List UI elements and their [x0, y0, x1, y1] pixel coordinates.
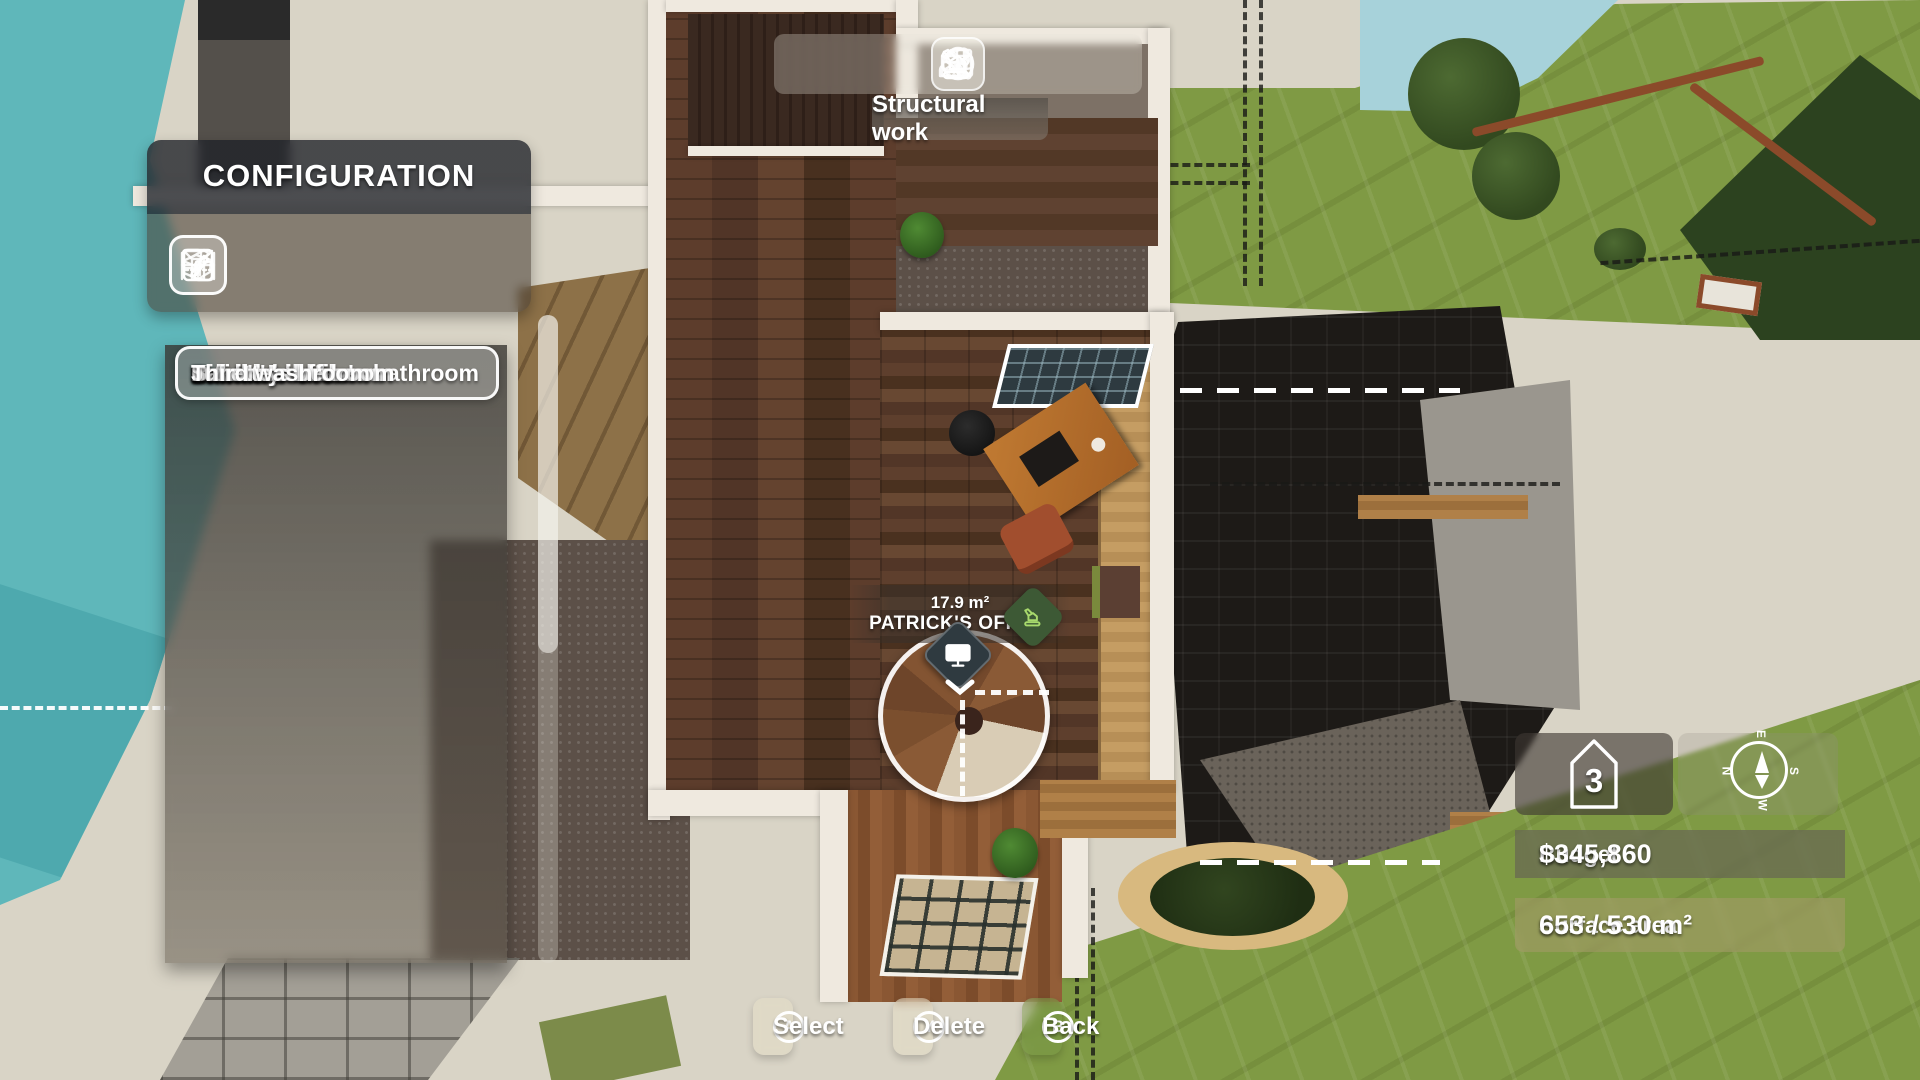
excavator-mini-icon — [1020, 604, 1046, 630]
plant-entry — [992, 828, 1038, 878]
compass-west: W — [1756, 799, 1770, 810]
room-list: KitchenLaundry roomEmma's bedroomErick's… — [165, 345, 507, 963]
tool-finish[interactable] — [931, 37, 985, 91]
mode-toolbar — [774, 34, 1142, 94]
white-dashed-guide-h — [975, 690, 1049, 695]
chevron-down-icon — [944, 678, 976, 696]
scrollbar-thumb[interactable] — [538, 315, 558, 653]
plant-corridor — [900, 212, 944, 258]
plan-wall-top — [666, 0, 896, 12]
configuration-panel: CONFIGURATION — [147, 140, 531, 312]
compass-north: N — [1719, 767, 1733, 776]
compass-icon: E S W N — [1730, 741, 1788, 799]
surface-panel: Surface area 653 / 530 m² — [1515, 898, 1845, 952]
monitor-icon — [943, 641, 973, 669]
back-button[interactable]: B Back — [1022, 998, 1062, 1055]
checkmark-icon — [937, 43, 979, 85]
black-dashed-line-v1 — [1243, 0, 1247, 286]
entry-rug-grid — [880, 874, 1039, 979]
tree-top-2 — [1472, 132, 1560, 220]
floor-number: 3 — [1585, 762, 1603, 800]
coffee-mug — [1089, 435, 1108, 454]
select-button-label: Select — [773, 1013, 844, 1041]
budget-panel: Budget $345,860 — [1515, 830, 1845, 878]
room-list-item-label: Third washroom — [191, 360, 370, 387]
office-wall-right — [1150, 312, 1174, 792]
black-dashed-line-h3 — [1210, 482, 1560, 486]
floor-indicator-panel: 3 — [1515, 733, 1673, 815]
config-tool-row — [169, 230, 509, 300]
compass-needle — [1755, 751, 1769, 773]
wood-bench — [1040, 780, 1176, 838]
toolbar-tooltip: Structural work — [872, 98, 1048, 140]
white-dashed-guide-v — [960, 700, 965, 796]
white-dashed-line-left — [0, 706, 172, 710]
white-dashed-roof-bottom — [1200, 860, 1440, 865]
room-area-label: 17.9 m² — [931, 593, 990, 613]
panel-title: CONFIGURATION — [147, 158, 531, 194]
action-bar: A Select Y Delete B Back — [0, 998, 1920, 1058]
demolish-icon — [178, 245, 218, 285]
surface-value: 653 / 530 m² — [1539, 910, 1692, 941]
black-dashed-line-v2 — [1259, 0, 1263, 286]
budget-value: $345,860 — [1539, 839, 1652, 870]
white-dashed-roof-top — [1180, 388, 1460, 393]
tooltip-label: Structural work — [872, 91, 1048, 147]
config-tool-demolish[interactable] — [169, 235, 227, 295]
laptop — [1019, 431, 1079, 487]
delete-button-label: Delete — [913, 1013, 985, 1041]
room-divider-wall — [688, 146, 884, 156]
balcony-plank-edge — [1358, 495, 1528, 519]
floor-badge: 3 — [1568, 737, 1620, 811]
compass-needle-tail — [1755, 775, 1769, 789]
select-button[interactable]: A Select — [753, 998, 793, 1055]
office-wall-top — [880, 312, 1170, 332]
compass-panel: E S W N — [1678, 733, 1838, 815]
game-viewport: Structural work CONFIGURATION — [0, 0, 1920, 1080]
deck-wall-left — [820, 790, 848, 1002]
delete-button[interactable]: Y Delete — [893, 998, 933, 1055]
back-button-label: Back — [1042, 1013, 1099, 1041]
compass-south: S — [1787, 767, 1801, 775]
compass-east: E — [1754, 730, 1768, 738]
side-cabinet — [1092, 566, 1140, 618]
bush-dark — [1150, 858, 1315, 936]
room-list-scrollbar[interactable] — [538, 315, 558, 963]
